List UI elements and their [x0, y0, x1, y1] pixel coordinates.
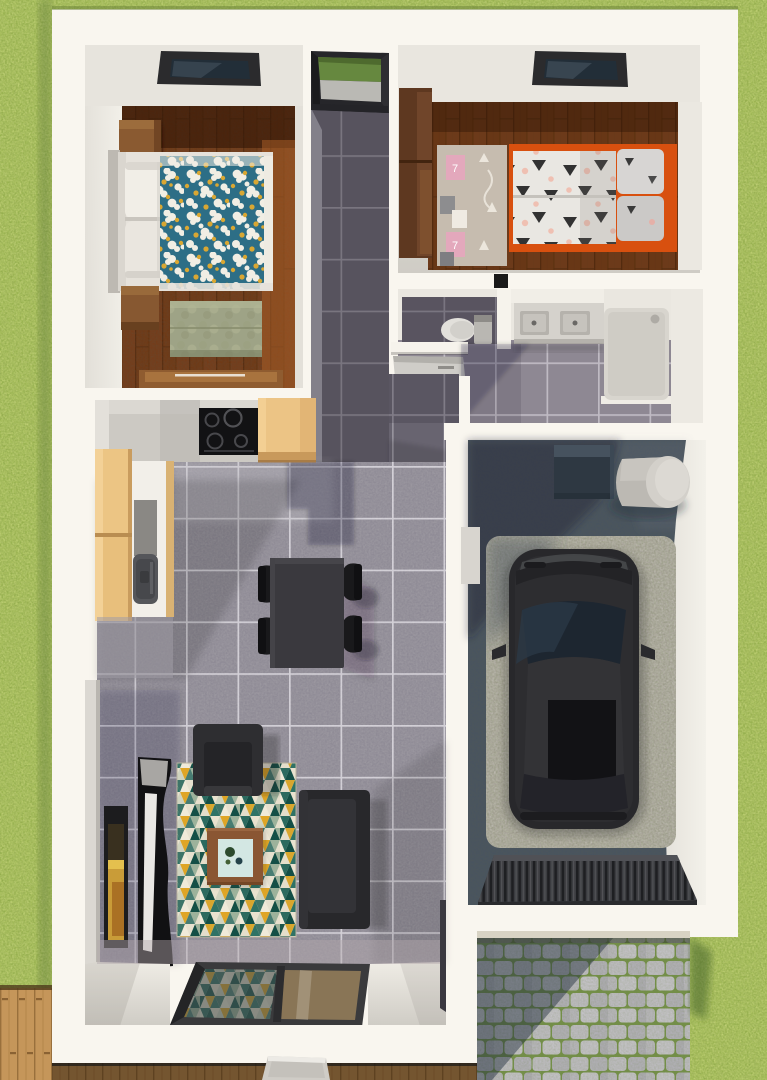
svg-text:7: 7	[452, 163, 458, 175]
svg-text:7: 7	[452, 240, 458, 252]
